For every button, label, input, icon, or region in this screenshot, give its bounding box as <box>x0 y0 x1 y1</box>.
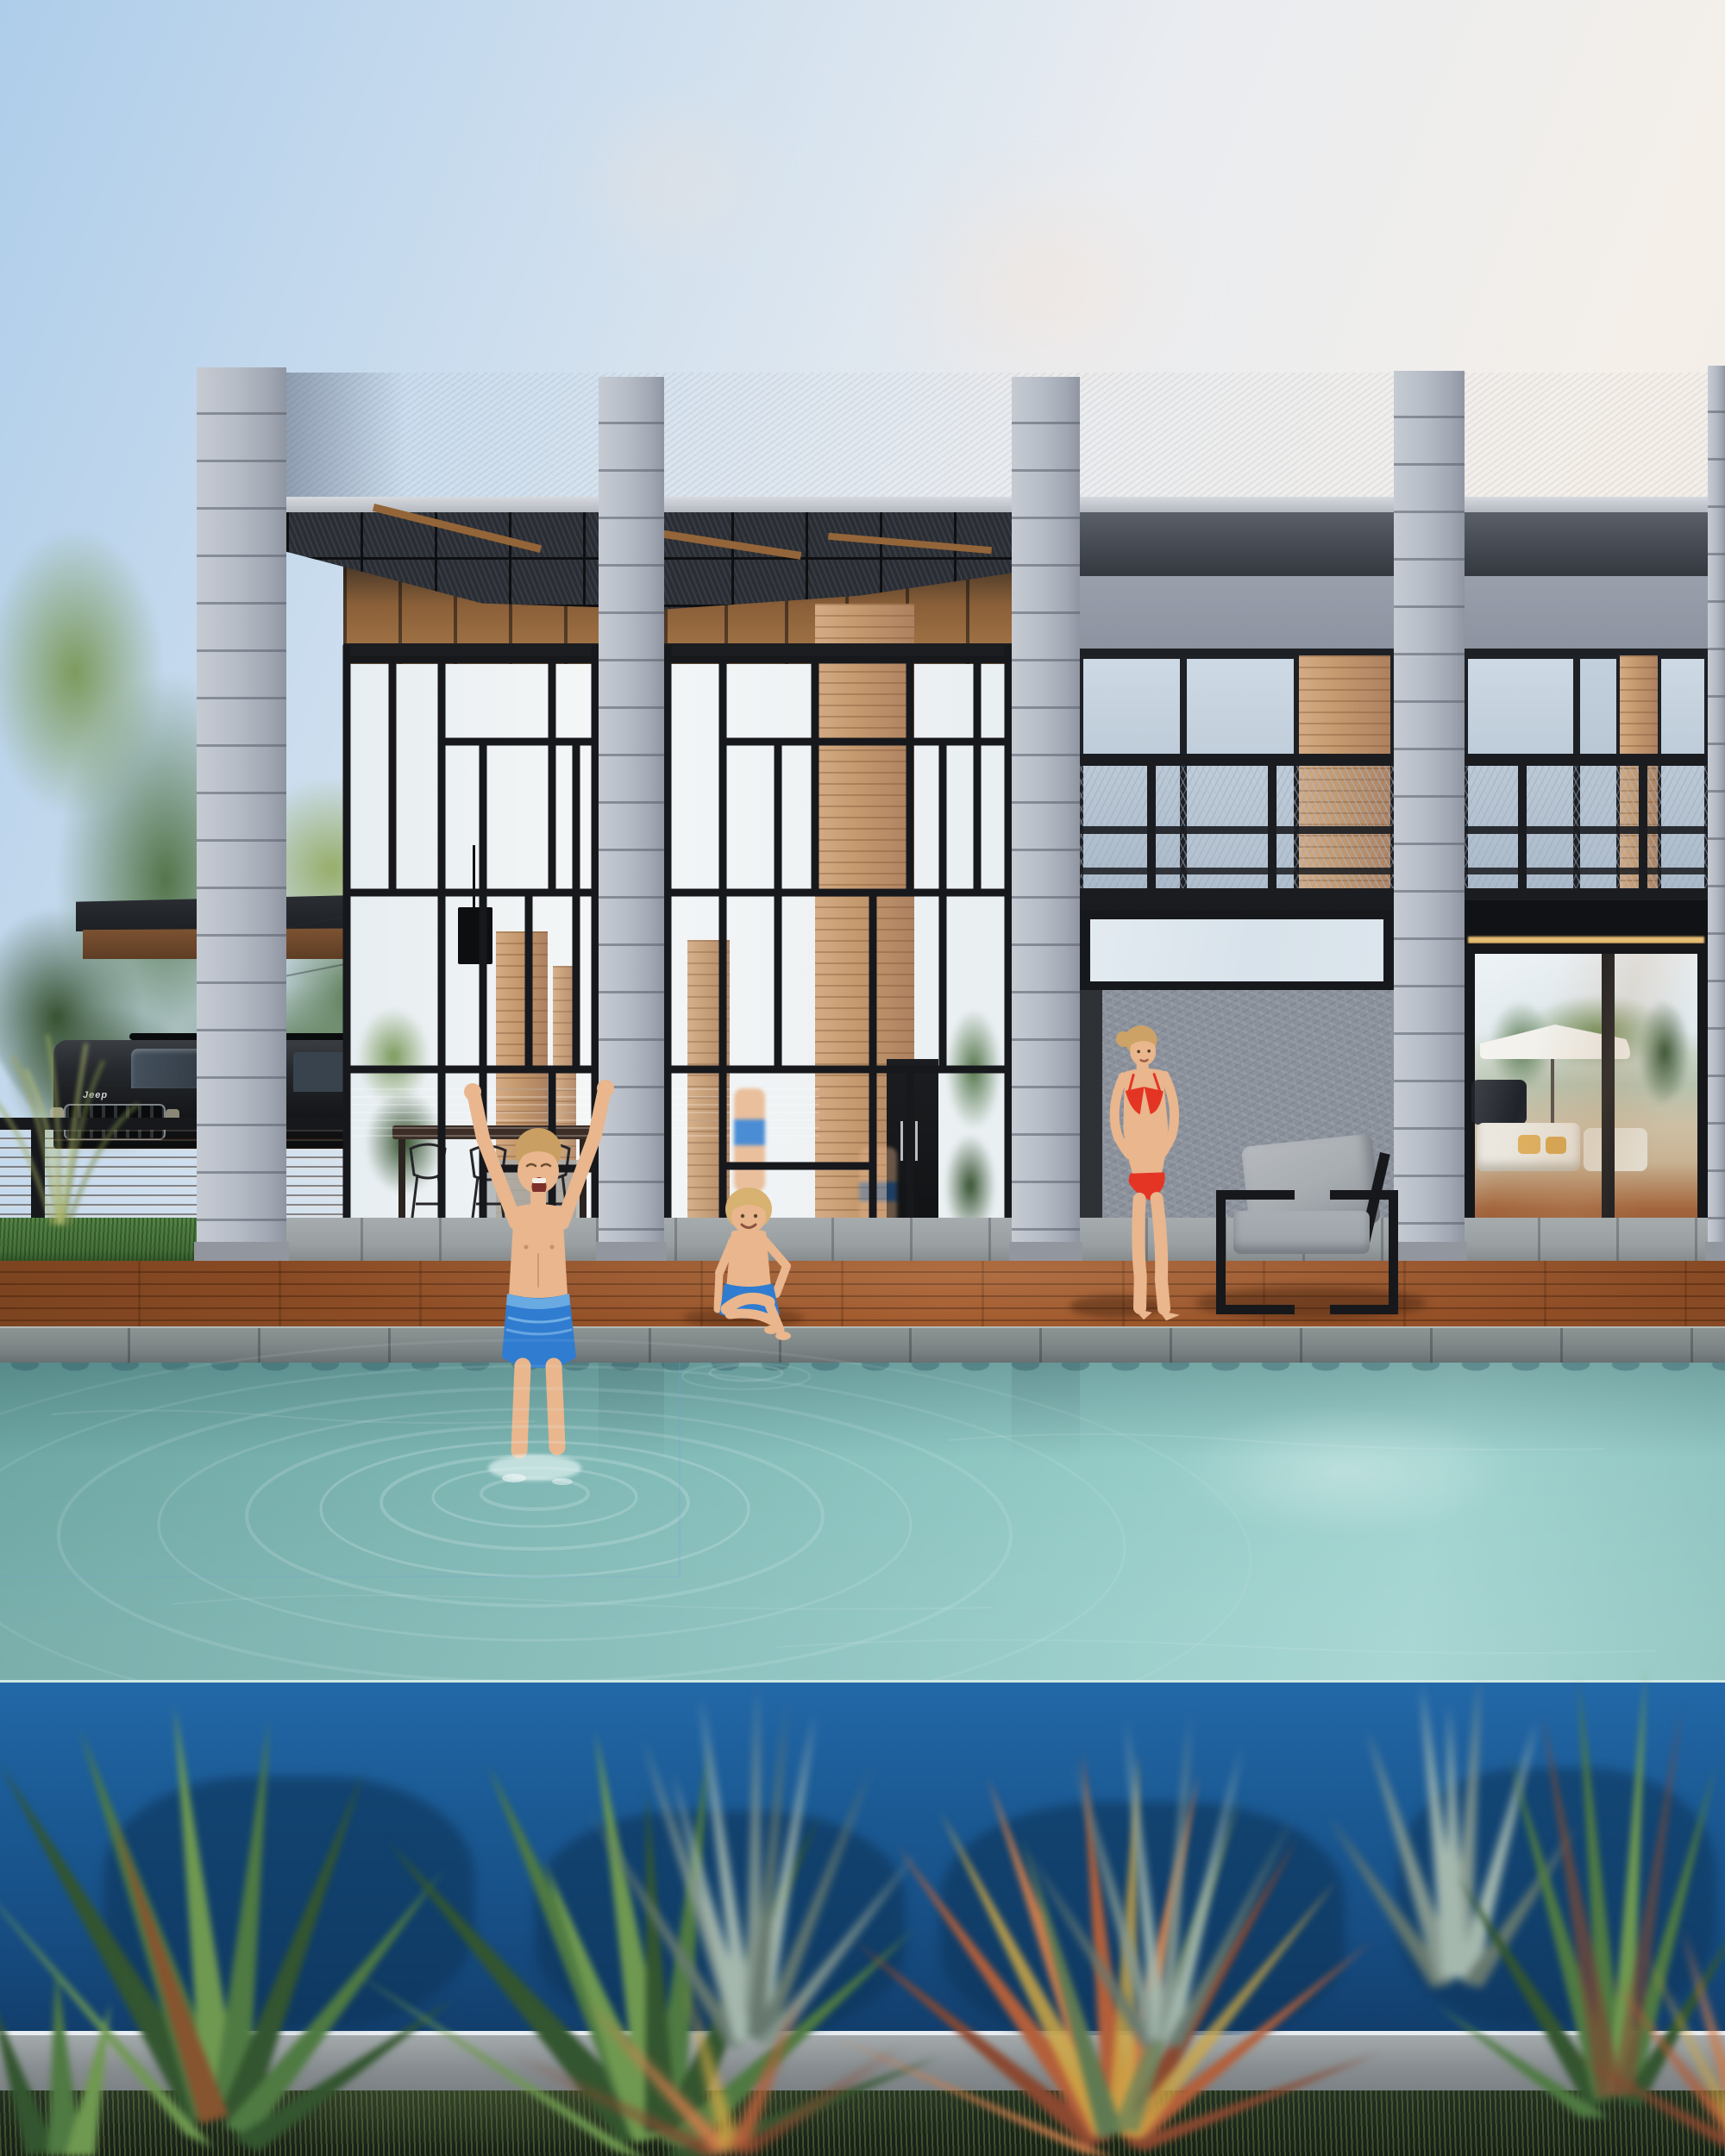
ornamental-grass <box>0 1009 147 1225</box>
plant-cordyline-corner <box>1552 1923 1725 2156</box>
cloud-wisp-2 <box>517 52 828 310</box>
pillar-3 <box>1012 377 1080 1261</box>
figure-child-sitting <box>674 1183 817 1351</box>
pillar-5-edge <box>1708 366 1725 1261</box>
balcony-bottom-rail <box>1020 888 1725 900</box>
water-sun-glint <box>1104 1376 1587 1566</box>
grass-strip <box>0 1218 216 1264</box>
door-glass-reflection <box>1475 954 1697 1250</box>
chair-frame-right <box>1330 1190 1398 1314</box>
led-strip <box>1468 937 1704 943</box>
deck-sheen <box>0 1261 1725 1326</box>
balcony-post <box>1518 754 1527 900</box>
plant-red-low-center <box>483 1984 931 2156</box>
recessed-soffit <box>1012 512 1725 576</box>
pool-coping <box>0 1326 1725 1364</box>
transom-glass <box>1090 919 1383 981</box>
mullion-grid-b <box>664 645 1012 1261</box>
pillar-1 <box>197 367 286 1261</box>
chair-frame-left <box>1216 1190 1295 1314</box>
upper-wall-band <box>1012 576 1725 650</box>
pillar-4 <box>1394 371 1465 1261</box>
balcony-top-rail <box>1020 754 1725 766</box>
parapet-wall <box>259 373 1725 497</box>
balcony-mid-rail <box>1020 826 1725 834</box>
balcony-post <box>1268 754 1276 900</box>
plant-yucca-gray-right <box>983 1712 1311 2057</box>
balcony-post <box>1639 754 1647 900</box>
figure-woman-red-bikini <box>1080 1014 1215 1329</box>
roof-slab-edge <box>259 497 1725 514</box>
scene-villa-pool: Jeep <box>0 0 1725 2156</box>
balcony-mid-rail-2 <box>1020 868 1725 874</box>
balcony-post <box>1147 754 1156 900</box>
